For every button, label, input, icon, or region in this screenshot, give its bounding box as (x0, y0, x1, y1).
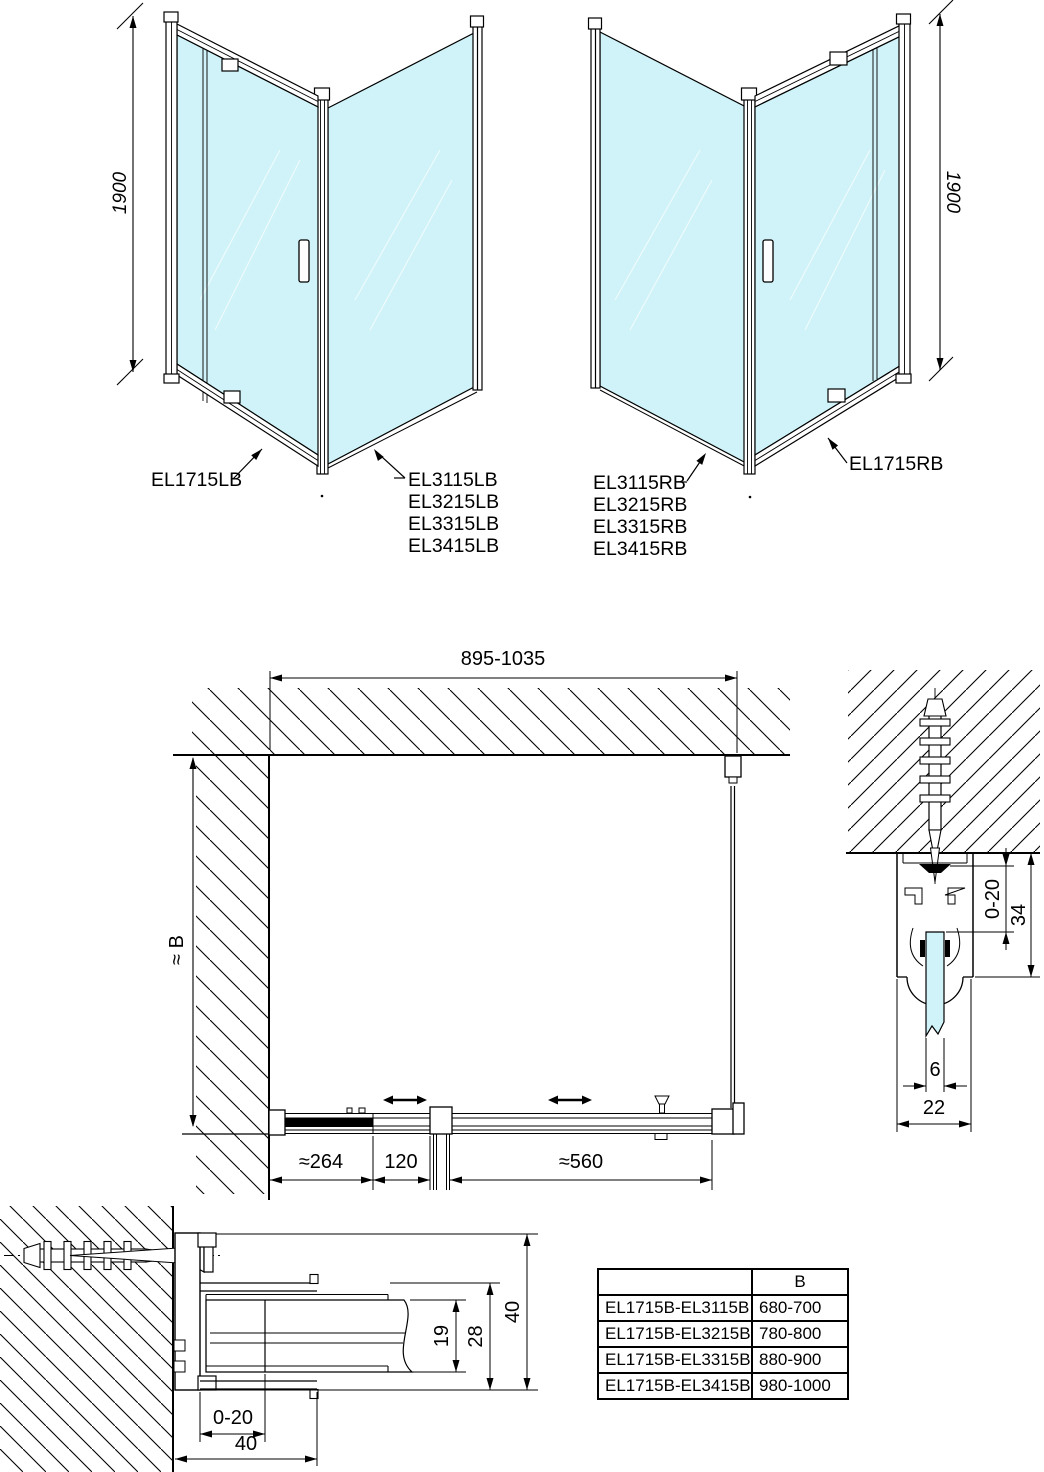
door-handle (299, 240, 309, 282)
door-frame-glass-bar (206, 1300, 412, 1372)
height-dim-text: 34 (1008, 904, 1030, 926)
size-table: B EL1715B-EL3115B 680-700 EL1715B-EL3215… (597, 1268, 849, 1400)
iso-left-drawing: 1900 EL1715LB EL3115LB EL3215LB EL3315LB… (30, 0, 530, 575)
iso-right-side-label-4: EL3415RB (593, 538, 687, 560)
plan-pivot-dim-text: 120 (384, 1151, 417, 1173)
iso-left-side-label-3: EL3315LB (408, 513, 499, 535)
depth-dim-text: 40 (235, 1433, 257, 1455)
glass-pane-section (926, 932, 944, 1036)
iso-right-door-label: EL1715RB (849, 453, 943, 475)
hinge-top (222, 59, 238, 71)
plan-walls (173, 688, 790, 1200)
iso-left-door-label: EL1715LB (151, 469, 242, 491)
b-value-cell: 680-700 (752, 1295, 848, 1321)
iso-left-geometry (164, 12, 484, 497)
plan-view-drawing: 895-1035 ≈ B (160, 630, 800, 1200)
hinge-bottom (224, 391, 240, 403)
iso-left-side-label-1: EL3115LB (408, 469, 498, 491)
table-header-b: B (752, 1269, 848, 1295)
combo-cell: EL1715B-EL3115B (598, 1295, 752, 1321)
frame-dim-text: 28 (465, 1325, 487, 1347)
wall-profile-section-horizontal: 0-20 40 19 28 40 (0, 1200, 560, 1472)
total-dim-text: 40 (502, 1301, 524, 1323)
adjust-dim-text: 0-20 (982, 879, 1004, 919)
iso-right-drawing: 1900 EL1715RB EL3115RB EL3215RB EL3315RB… (540, 0, 1044, 575)
table-row: EL1715B-EL3215B 780-800 (598, 1321, 848, 1347)
plan-depth-text: ≈ B (166, 935, 188, 965)
glass-channel-dim-text: 19 (431, 1325, 453, 1347)
plan-side-panel (725, 756, 741, 1108)
plan-width-text: 895-1035 (461, 648, 546, 670)
adjust-dim-text: 0-20 (213, 1407, 253, 1429)
plan-depth-dimension (190, 757, 197, 1127)
wall-profile-section-vertical: 0-20 34 6 22 (845, 640, 1044, 1170)
iso-left-side-label-2: EL3215LB (408, 491, 499, 513)
table-header-empty (598, 1269, 752, 1295)
plan-track (269, 1096, 744, 1190)
b-value-cell: 880-900 (752, 1347, 848, 1373)
combo-cell: EL1715B-EL3415B (598, 1373, 752, 1399)
table-header-row: B (598, 1269, 848, 1295)
combo-cell: EL1715B-EL3315B (598, 1347, 752, 1373)
iso-left-side-label-4: EL3415LB (408, 535, 499, 557)
slide-direction-arrows (383, 1096, 592, 1105)
iso-right-side-label-2: EL3215RB (593, 494, 687, 516)
table-row: EL1715B-EL3115B 680-700 (598, 1295, 848, 1321)
plan-door-dim-text: ≈560 (559, 1151, 603, 1173)
technical-drawing-page: 1900 EL1715LB EL3115LB EL3215LB EL3315LB… (0, 0, 1044, 1472)
iso-right-side-label-1: EL3115RB (593, 472, 686, 494)
plan-fixed-dim-text: ≈264 (299, 1151, 343, 1173)
table-row: EL1715B-EL3415B 980-1000 (598, 1373, 848, 1399)
iso-left-height-text: 1900 (110, 171, 131, 214)
iso-right-geometry (589, 14, 912, 498)
b-value-cell: 780-800 (752, 1321, 848, 1347)
iso-right-height-text: 1900 (942, 171, 963, 214)
width-dim-text: 22 (923, 1097, 945, 1119)
b-value-cell: 980-1000 (752, 1373, 848, 1399)
combo-cell: EL1715B-EL3215B (598, 1321, 752, 1347)
door-handle (763, 240, 773, 282)
table-row: EL1715B-EL3315B 880-900 (598, 1347, 848, 1373)
glass-dim-text: 6 (929, 1059, 940, 1081)
iso-right-side-label-3: EL3315RB (593, 516, 687, 538)
hinge-bottom (828, 389, 845, 402)
hinge-top (830, 52, 847, 65)
